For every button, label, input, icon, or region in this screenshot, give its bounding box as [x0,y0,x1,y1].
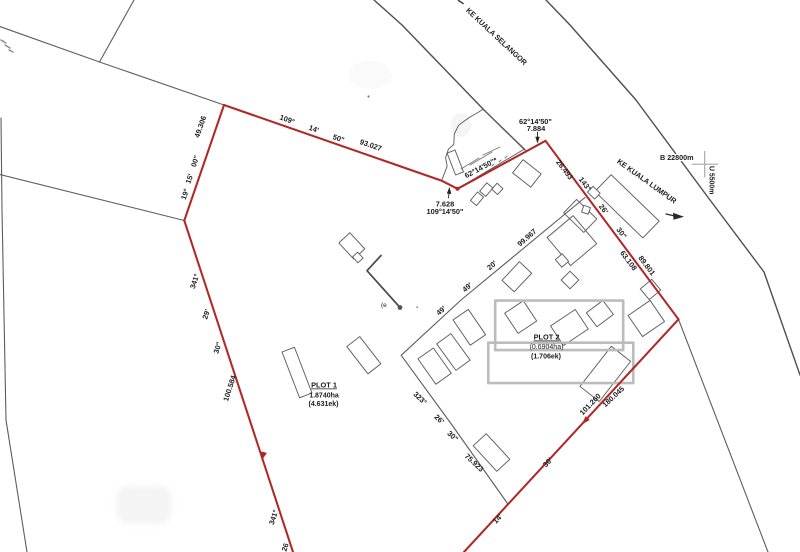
svg-text:PLOT 1: PLOT 1 [311,381,337,390]
svg-text:B 22800m: B 22800m [660,153,694,162]
svg-text:1.8740ha: 1.8740ha [309,393,339,400]
svg-text:109°14'50": 109°14'50" [427,207,464,216]
svg-text:(1.706ek): (1.706ek) [531,354,561,361]
svg-text:U 5500m: U 5500m [708,166,715,194]
svg-text:(0.6904ha): (0.6904ha) [530,344,564,351]
svg-text:(4.631ek): (4.631ek) [309,401,339,408]
svg-text:7.884: 7.884 [527,124,546,133]
svg-text:(e: (e [381,302,387,309]
svg-text:PLOT 2: PLOT 2 [534,333,560,342]
